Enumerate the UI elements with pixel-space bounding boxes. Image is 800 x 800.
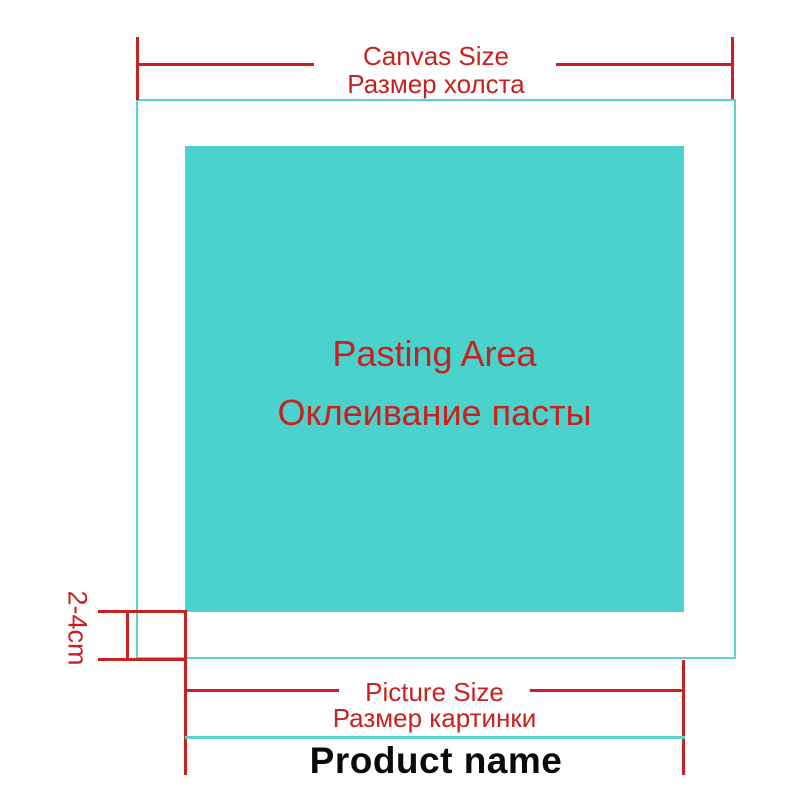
margin-bracket-bottom-line: [98, 658, 187, 661]
size-diagram: Canvas Size Размер холста Pasting Area О…: [0, 0, 800, 800]
canvas-size-label-en: Canvas Size: [136, 42, 736, 70]
margin-bracket-top-line: [98, 610, 187, 613]
canvas-size-label-ru: Размер холста: [136, 70, 736, 98]
picture-size-label-en: Picture Size: [185, 678, 684, 706]
margin-label: 2-4cm: [62, 590, 93, 665]
margin-bracket-connector: [126, 610, 129, 661]
picture-bottom-separator-line: [185, 736, 685, 739]
pasting-area: Pasting Area Оклеивание пасты: [185, 146, 684, 612]
pasting-area-label-ru: Оклеивание пасты: [278, 392, 592, 434]
product-name: Product name: [136, 740, 736, 782]
picture-size-label-ru: Размер картинки: [185, 704, 684, 732]
pasting-area-label-en: Pasting Area: [332, 333, 536, 375]
